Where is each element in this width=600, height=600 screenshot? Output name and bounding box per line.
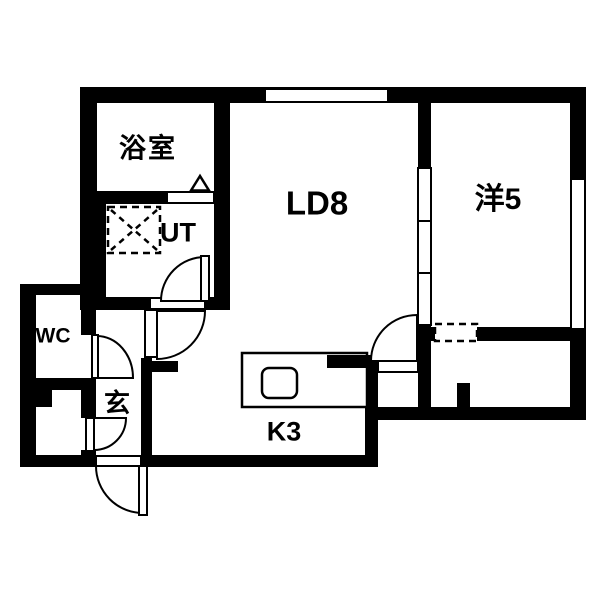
wc-door-arc bbox=[97, 336, 133, 378]
room-label-kitchen: K3 bbox=[267, 419, 302, 446]
wc-door-leaf bbox=[92, 335, 98, 378]
wall-bottom-left bbox=[20, 455, 96, 467]
entrance-door-arc bbox=[96, 466, 143, 513]
floorplan-drawing bbox=[0, 0, 600, 600]
bathroom-folding-door-marker bbox=[191, 176, 209, 191]
hall-door-leaf bbox=[145, 310, 157, 357]
ld-closet-door-arc bbox=[371, 315, 417, 361]
wall-br-stub bbox=[457, 383, 470, 408]
kitchen-sink bbox=[262, 368, 297, 398]
dashed-wall-opening bbox=[435, 324, 477, 341]
wall-bath-bottom bbox=[80, 191, 167, 204]
window-top-ld bbox=[265, 89, 388, 102]
wall-wc-bottom bbox=[20, 378, 81, 390]
entrance-doorway bbox=[96, 456, 141, 466]
wall-genkan-kitchen bbox=[141, 358, 152, 467]
room-label-toilet: WC bbox=[36, 326, 71, 347]
floorplan: 浴室 UT LD8 洋5 WC 玄 K3 bbox=[0, 0, 600, 600]
washing-machine-space bbox=[108, 207, 160, 253]
kitchen-fixtures bbox=[242, 353, 378, 407]
room-label-living-dining: LD8 bbox=[286, 187, 348, 220]
wall-left-lower bbox=[20, 284, 36, 467]
hall-door-arc bbox=[157, 311, 205, 359]
closet-door-leaf bbox=[86, 418, 94, 451]
closet-door-arc bbox=[94, 418, 126, 450]
wall-closet-stub bbox=[36, 390, 52, 407]
room-label-bathroom: 浴室 bbox=[119, 136, 177, 163]
bathroom-doorway bbox=[167, 192, 214, 203]
entrance-door-leaf bbox=[139, 466, 147, 515]
room-label-entrance: 玄 bbox=[104, 390, 130, 416]
room-label-utility: UT bbox=[160, 220, 196, 247]
wall-hall-stub bbox=[152, 361, 178, 372]
wall-bottom-main bbox=[152, 455, 378, 467]
ut-door-leaf bbox=[201, 256, 209, 301]
wall-partition-top bbox=[418, 103, 431, 168]
wall-bath-right bbox=[214, 103, 230, 310]
wall-wc-right-a bbox=[81, 284, 96, 335]
ut-door-arc bbox=[161, 257, 205, 301]
room-label-western-room: 洋5 bbox=[475, 185, 522, 215]
window-west-right bbox=[571, 179, 585, 329]
sliding-door-panels bbox=[418, 168, 431, 325]
wall-bottom-right bbox=[378, 407, 586, 420]
wall-wc-right-b bbox=[81, 378, 96, 418]
sliding-door-partition bbox=[418, 168, 431, 325]
